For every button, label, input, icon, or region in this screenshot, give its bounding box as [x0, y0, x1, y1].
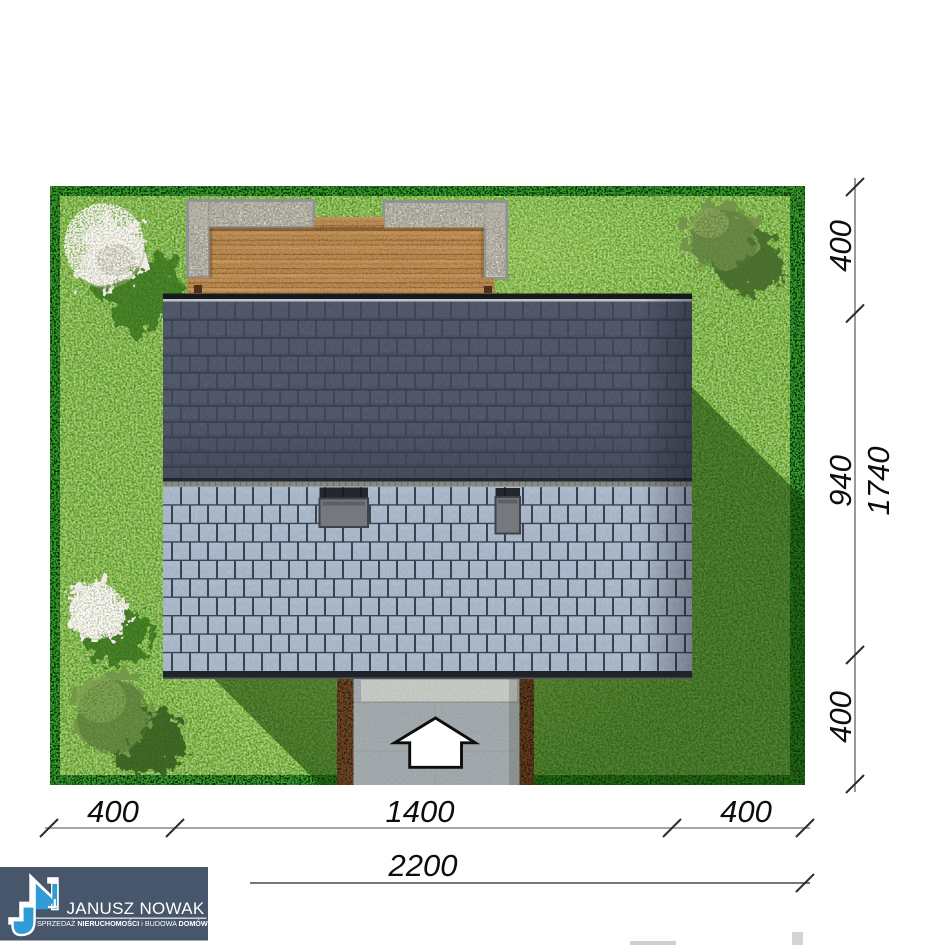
svg-text:400: 400: [823, 220, 858, 272]
svg-text:400: 400: [823, 691, 858, 743]
svg-text:2200: 2200: [388, 848, 458, 883]
svg-text:1740: 1740: [861, 447, 896, 516]
svg-text:SPRZEDAŻ NIERUCHOMOŚCI i BUDOW: SPRZEDAŻ NIERUCHOMOŚCI i BUDOWA DOMÓW: [37, 919, 208, 928]
svg-text:JANUSZ NOWAK: JANUSZ NOWAK: [67, 899, 205, 918]
svg-text:400: 400: [720, 794, 772, 829]
svg-text:1400: 1400: [386, 794, 455, 829]
svg-text:940: 940: [823, 455, 858, 507]
svg-text:400: 400: [87, 794, 139, 829]
